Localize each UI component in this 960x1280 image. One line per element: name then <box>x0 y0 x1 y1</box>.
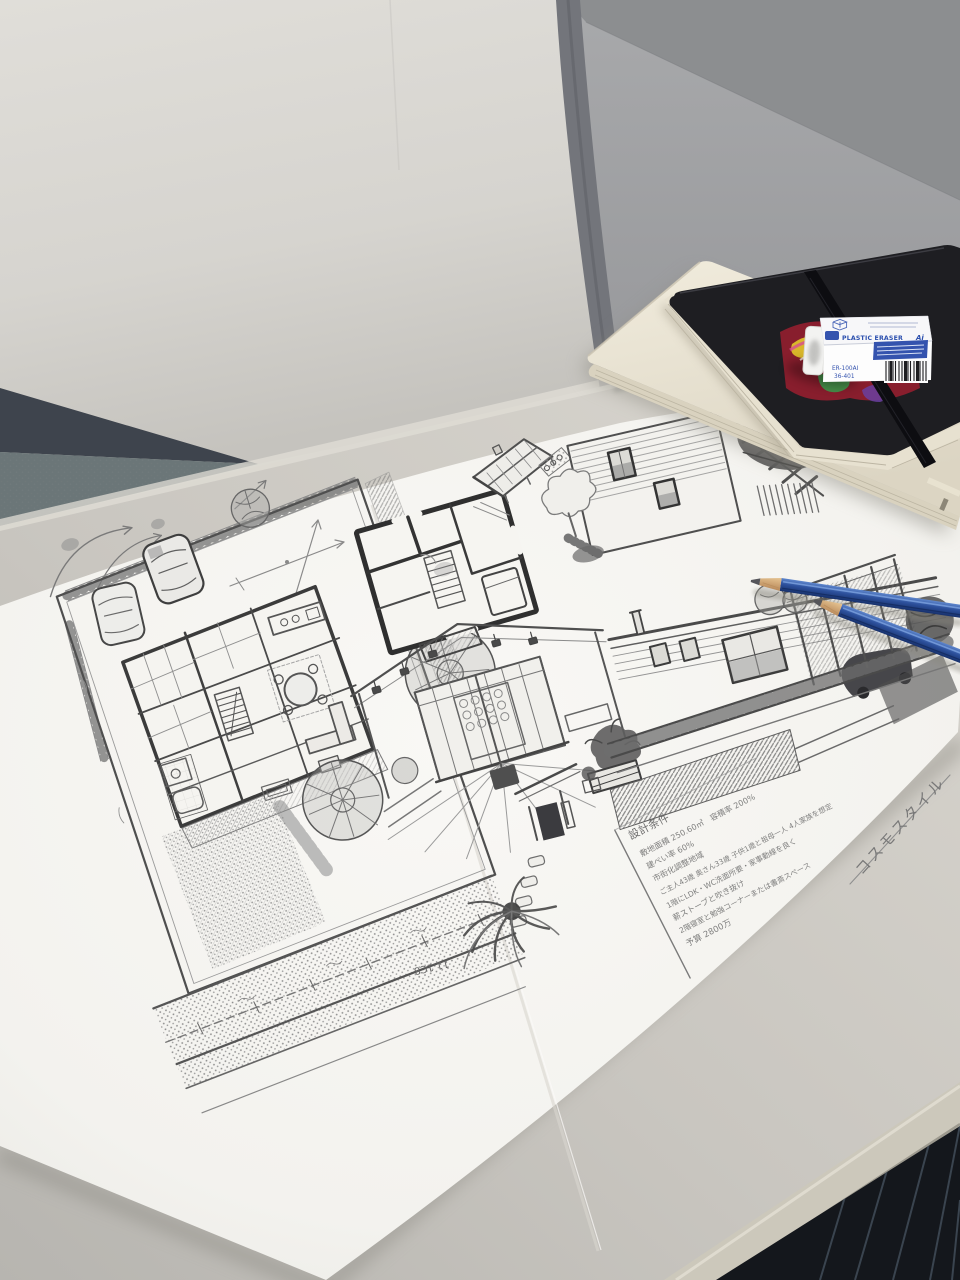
elevation-window-1 <box>608 448 636 480</box>
eraser-barcode <box>884 360 928 383</box>
eraser-model: ER-100AI <box>832 366 859 372</box>
house-window-small-1 <box>650 643 670 666</box>
photo-office-desk-scene: 11.1C8 <box>0 0 960 1280</box>
eraser-top-label: PLASTIC ERASER <box>842 335 903 342</box>
wall-panel-white <box>0 0 616 464</box>
eraser-logo-box <box>825 331 839 340</box>
eraser-code: 36-401 <box>834 374 855 380</box>
elevation-window-2 <box>654 479 679 509</box>
house-window-small-2 <box>679 638 699 661</box>
